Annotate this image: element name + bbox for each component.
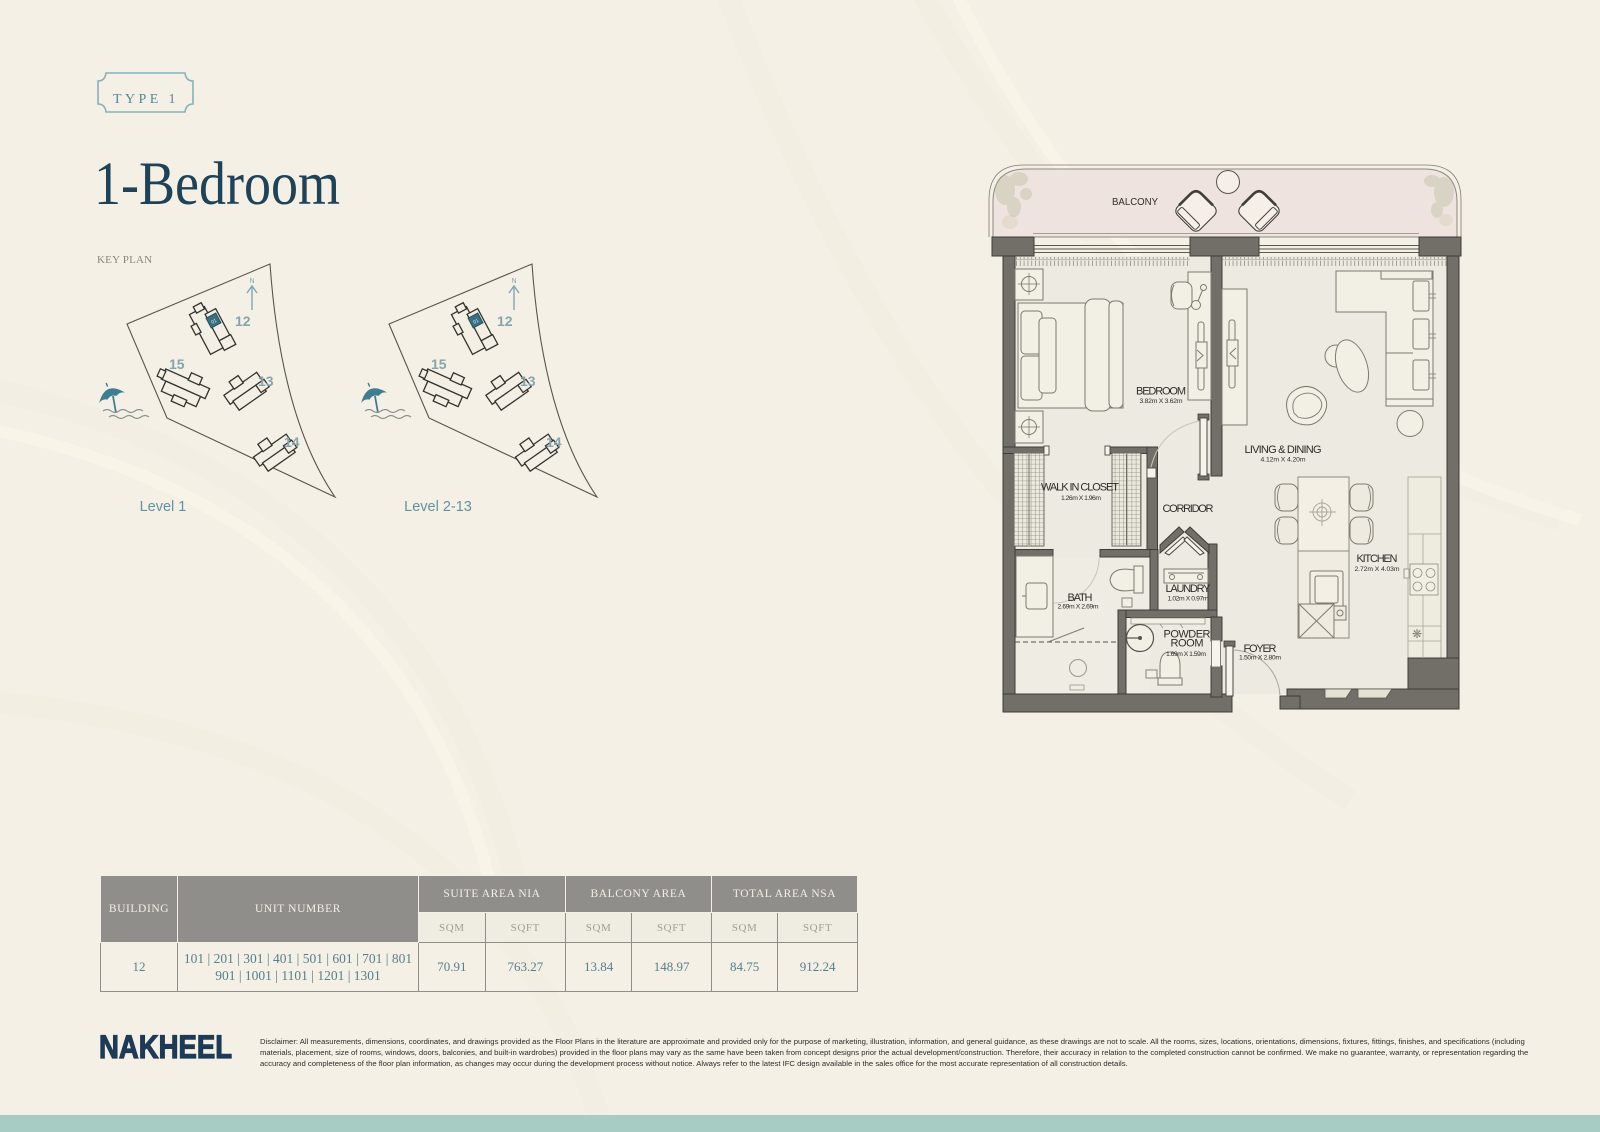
svg-text:Level 1: Level 1: [140, 499, 187, 515]
svg-text:1.50m X 2.80m: 1.50m X 2.80m: [1239, 655, 1281, 662]
svg-text:3.82m X 3.62m: 3.82m X 3.62m: [1140, 398, 1183, 405]
svg-text:TYPE 1: TYPE 1: [113, 92, 179, 107]
svg-text:KITCHEN: KITCHEN: [1357, 553, 1398, 565]
svg-text:❋: ❋: [1412, 627, 1422, 641]
svg-text:1-Bedroom: 1-Bedroom: [94, 151, 340, 218]
svg-text:BATH: BATH: [1068, 592, 1093, 604]
svg-text:WALK IN CLOSET: WALK IN CLOSET: [1041, 482, 1119, 494]
svg-text:1.69m X 1.59m: 1.69m X 1.59m: [1166, 651, 1206, 658]
svg-text:BEDROOM: BEDROOM: [1136, 386, 1186, 398]
svg-text:2.72m X 4.03m: 2.72m X 4.03m: [1355, 566, 1400, 573]
svg-text:1.02m X 0.97m: 1.02m X 0.97m: [1168, 596, 1209, 603]
svg-text:2.69m X 2.69m: 2.69m X 2.69m: [1058, 604, 1099, 611]
svg-text:FOYER: FOYER: [1244, 643, 1277, 655]
svg-text:1.26m X 1.96m: 1.26m X 1.96m: [1061, 495, 1101, 502]
svg-text:LAUNDRY: LAUNDRY: [1166, 583, 1212, 595]
svg-text:LIVING & DINING: LIVING & DINING: [1245, 444, 1322, 456]
svg-text:4.12m X 4.20m: 4.12m X 4.20m: [1261, 457, 1306, 464]
svg-text:ROOM: ROOM: [1171, 638, 1204, 650]
svg-text:BALCONY: BALCONY: [1112, 197, 1158, 208]
svg-text:Level 2-13: Level 2-13: [404, 499, 472, 515]
svg-text:CORRIDOR: CORRIDOR: [1163, 503, 1214, 515]
